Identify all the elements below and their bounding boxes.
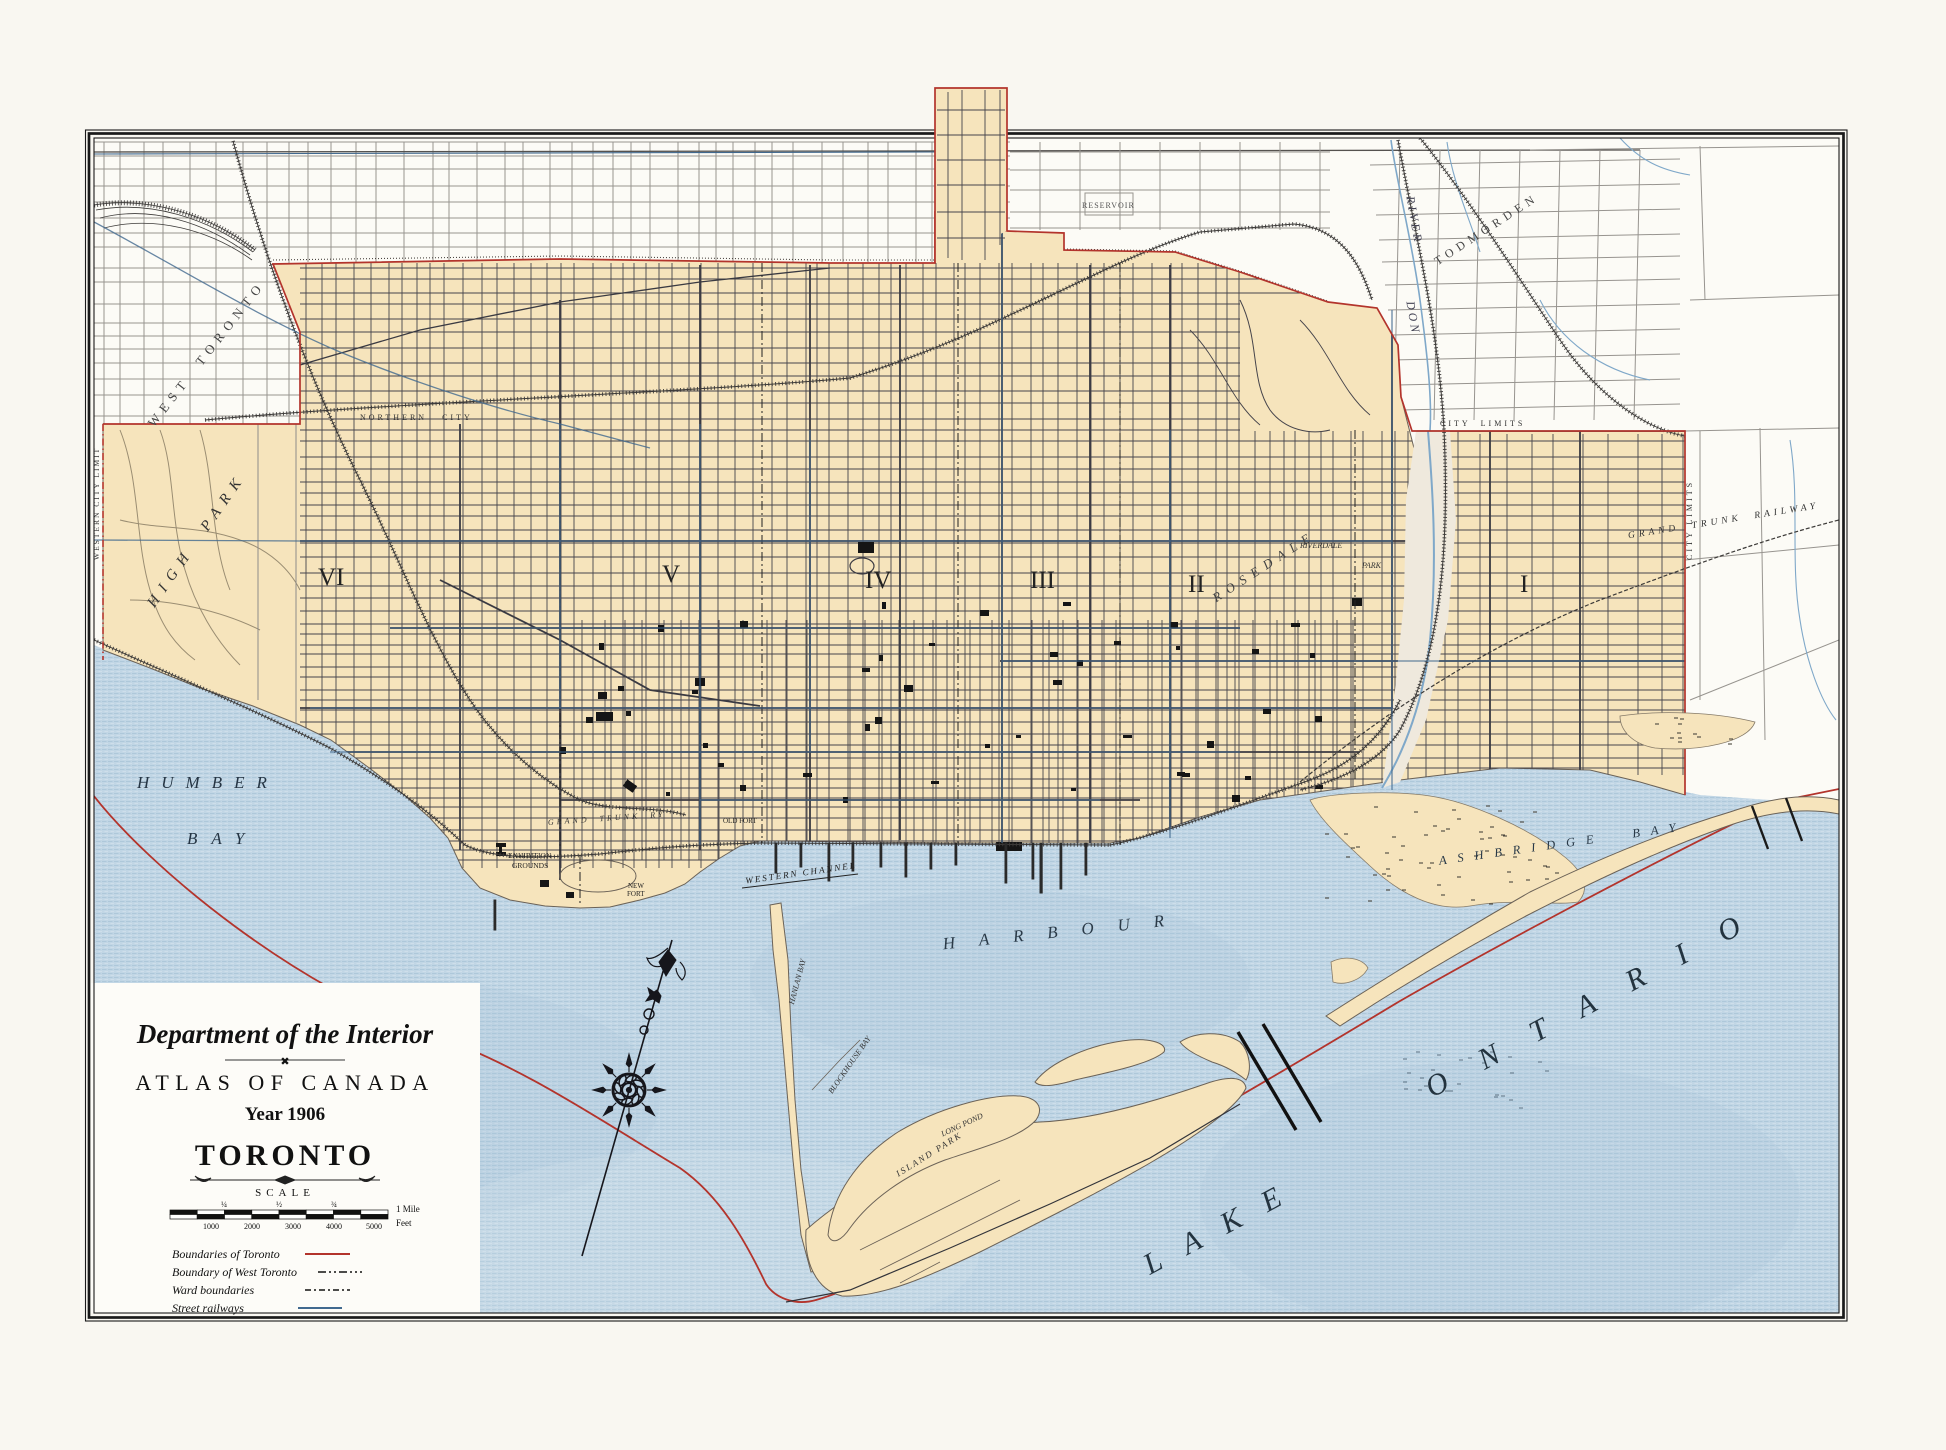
- svg-text:Boundary of West Toronto: Boundary of West Toronto: [172, 1265, 297, 1279]
- svg-text:CITY LIMITS: CITY LIMITS: [1685, 480, 1694, 560]
- svg-text:NEW: NEW: [628, 882, 644, 890]
- svg-text:Feet: Feet: [396, 1218, 412, 1228]
- svg-text:4000: 4000: [326, 1222, 342, 1231]
- svg-text:¾: ¾: [331, 1200, 337, 1209]
- svg-text:3000: 3000: [285, 1222, 301, 1231]
- svg-text:V: V: [662, 561, 680, 588]
- svg-text:VI: VI: [318, 564, 344, 591]
- svg-text:Department of the Interior: Department of the Interior: [136, 1019, 434, 1049]
- svg-text:5000: 5000: [366, 1222, 382, 1231]
- svg-text:ATLAS OF CANADA: ATLAS OF CANADA: [135, 1070, 434, 1095]
- svg-text:III: III: [1030, 567, 1055, 594]
- svg-text:CITY LIMITS: CITY LIMITS: [1440, 419, 1525, 428]
- svg-text:HUMBER: HUMBER: [136, 773, 279, 792]
- svg-text:PARK: PARK: [1361, 561, 1382, 570]
- svg-text:BAY: BAY: [187, 829, 258, 848]
- svg-text:1000: 1000: [203, 1222, 219, 1231]
- svg-text:Ward boundaries: Ward boundaries: [172, 1283, 254, 1297]
- svg-text:1 Mile: 1 Mile: [396, 1204, 420, 1214]
- svg-text:Boundaries of Toronto: Boundaries of Toronto: [172, 1247, 280, 1261]
- svg-text:Year 1906: Year 1906: [245, 1104, 325, 1125]
- svg-text:✖: ✖: [280, 1056, 289, 1068]
- svg-text:OLD FORT: OLD FORT: [723, 817, 757, 825]
- svg-text:RESERVOIR: RESERVOIR: [1082, 201, 1135, 210]
- svg-text:NORTHERN CITY: NORTHERN CITY: [360, 413, 473, 422]
- svg-text:RIVERDALE: RIVERDALE: [1299, 541, 1342, 550]
- svg-text:SCALE: SCALE: [255, 1187, 315, 1199]
- svg-text:¼: ¼: [221, 1200, 227, 1209]
- svg-text:I: I: [1520, 571, 1528, 598]
- svg-text:2000: 2000: [244, 1222, 260, 1231]
- svg-text:FORT: FORT: [627, 890, 645, 898]
- svg-text:II: II: [1188, 571, 1205, 598]
- svg-text:GROUNDS: GROUNDS: [512, 861, 548, 870]
- svg-text:½: ½: [276, 1200, 282, 1209]
- svg-text:IV: IV: [865, 567, 891, 594]
- svg-text:EXHIBITION: EXHIBITION: [508, 851, 552, 860]
- svg-text:TORONTO: TORONTO: [195, 1139, 375, 1172]
